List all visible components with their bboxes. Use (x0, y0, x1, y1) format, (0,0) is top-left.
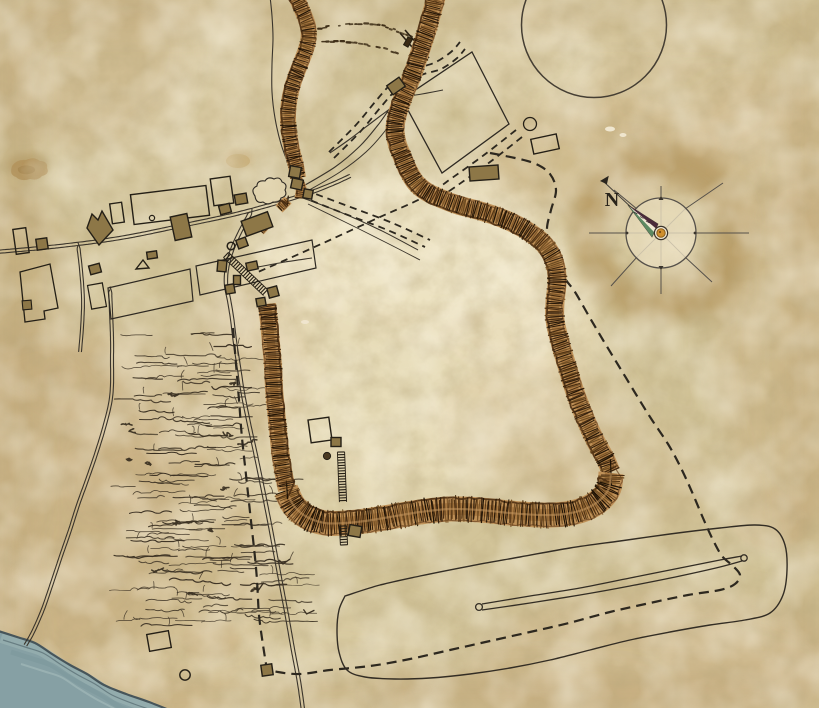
svg-text:N: N (605, 189, 620, 211)
